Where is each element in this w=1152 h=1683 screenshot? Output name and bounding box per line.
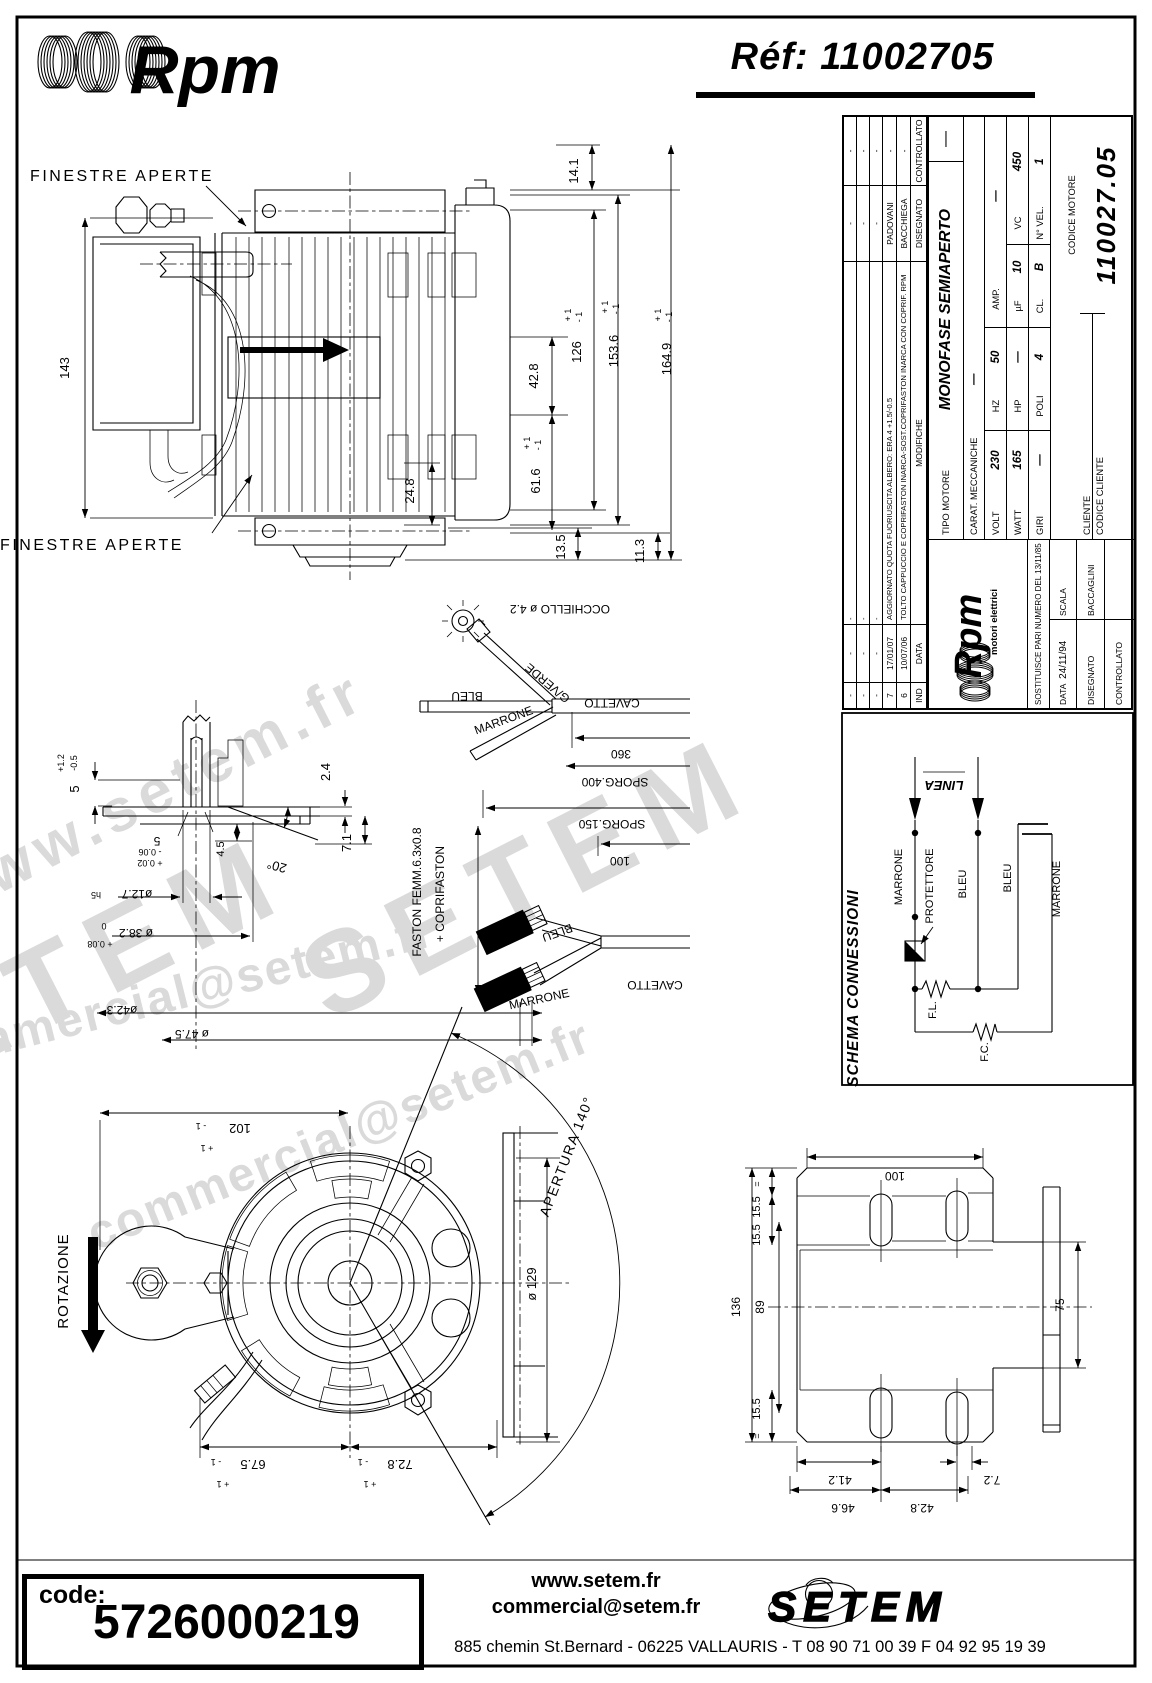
- dim-89: 89: [753, 1300, 767, 1314]
- cliente-label: CLIENTE: [1080, 314, 1093, 539]
- rev-cell: -: [857, 117, 870, 185]
- hz-label: HZ: [985, 386, 1006, 431]
- tipo-motore-note: —: [929, 117, 963, 162]
- dim-164-9-tol-minus: - 1: [664, 312, 674, 323]
- equal-mark-bottom: =: [752, 1433, 762, 1438]
- dim-12-7-suffix: h5: [91, 890, 101, 900]
- dim-100-cable: 100: [610, 854, 630, 868]
- rev-cell: -: [857, 624, 870, 682]
- footer-email: commercial@setem.fr: [300, 1596, 892, 1619]
- dim-13-5: 13.5: [553, 534, 568, 559]
- dim-12-7: ø12.7: [121, 887, 152, 901]
- dim-2-4: 2.4: [318, 763, 333, 781]
- rev-cell: -: [844, 682, 857, 708]
- cavetto-a-label: CAVETTO: [584, 696, 640, 710]
- nvel-label: N° VEL.: [1029, 206, 1050, 245]
- bleu-a-label: BLEU: [451, 689, 482, 703]
- schema-title: SCHEMA CONNESSIONI: [845, 889, 862, 1086]
- rev-cell: -: [844, 117, 857, 185]
- dim-11-3: 11.3: [632, 539, 647, 563]
- title-block: ----- ----- ----- 717/01/07AGGIORNATO QU…: [842, 115, 1133, 710]
- rev-cell: -: [870, 682, 883, 708]
- dim-67-5-tol-minus: - 1: [211, 1457, 222, 1467]
- equal-mark-top: =: [752, 1181, 762, 1186]
- cl-label: CL.: [1029, 289, 1050, 328]
- disegnato-label: DISEGNATO: [1077, 620, 1104, 708]
- uf-value: 10: [1012, 245, 1024, 289]
- dim-61-6-tol-minus: - 1: [533, 440, 543, 451]
- gverde-label: G/VERDE: [522, 660, 572, 705]
- hp-label: HP: [1007, 386, 1028, 431]
- codice-cliente-label: CODICE CLIENTE: [1093, 314, 1105, 539]
- dim-15-5-c: 15.5: [751, 1398, 763, 1419]
- dim-5b-tol-plus: + 0.02: [137, 858, 162, 868]
- rev-cell: -: [844, 261, 857, 624]
- faston-label-2: + COPRIFASTON: [433, 846, 447, 942]
- faston-label-1: FASTON FEMM.6.3x0.8: [410, 827, 424, 956]
- rev-header-ind: IND: [911, 682, 927, 708]
- rev-cell: -: [883, 117, 897, 185]
- amp-value: —: [990, 117, 1002, 275]
- dim-61-6-tol-plus: + 1: [522, 437, 532, 450]
- watt-label: WATT: [1013, 489, 1023, 539]
- dim-46-6: 46.6: [831, 1501, 855, 1515]
- data-row: DATA 24/11/94: [1050, 620, 1077, 708]
- dim-61-6: 61.6: [528, 468, 543, 493]
- cavetto-b-label: CAVETTO: [627, 978, 683, 992]
- rev-cell: -: [857, 261, 870, 624]
- dim-5a-tol-plus: +1.2: [56, 754, 66, 772]
- direction-arrow-icon: [240, 338, 349, 362]
- controllato-value: [1105, 540, 1134, 619]
- dim-38-2-tol-0: 0: [101, 921, 106, 931]
- schema-marrone-1: MARRONE: [893, 849, 905, 905]
- rev-header-disegnato: DISEGNATO: [911, 185, 927, 261]
- dim-14-1: 14.1: [566, 158, 581, 183]
- dim-41-2: 41.2: [828, 1473, 852, 1487]
- codice-motore-value: 110027.05: [1091, 146, 1122, 285]
- dim-5b: 5: [153, 834, 160, 848]
- dim-126-tol-plus: + 1: [563, 309, 573, 322]
- finestre-aperte-top-label: FINESTRE APERTE: [30, 168, 214, 185]
- dim-143: 143: [57, 357, 72, 379]
- title-block-body: Rpm motori elettrici SOSTITUISCE PARI NU…: [929, 117, 1134, 708]
- dim-72-8: 72.8: [387, 1457, 412, 1472]
- vc-label: VC: [1007, 206, 1028, 245]
- fl-label: F.L.: [927, 1001, 939, 1019]
- data-label: DATA: [1058, 684, 1068, 705]
- title-block-inner: ----- ----- ----- 717/01/07AGGIORNATO QU…: [842, 115, 1133, 710]
- dim-102-tol-minus: - 1: [196, 1121, 207, 1131]
- rpm-logo-text: Rpm: [129, 32, 280, 108]
- linea-arrows: [909, 798, 984, 820]
- rev-header-data: DATA: [911, 624, 927, 682]
- poli-label: POLI: [1029, 386, 1050, 431]
- dim-102: 102: [229, 1121, 251, 1136]
- fc-label: F.C.: [979, 1042, 991, 1062]
- dim-126: 126: [569, 341, 584, 363]
- winding-windows: [202, 253, 476, 479]
- dim-5a-tol-minus: -0.5: [69, 755, 79, 771]
- hz-value: 50: [990, 328, 1002, 386]
- dim-72-8-tol-plus: + 1: [364, 1479, 377, 1489]
- dim-164-9-tol-plus: + 1: [653, 309, 663, 322]
- dim-75: 75: [1053, 1298, 1067, 1312]
- dim-42-8: 42.8: [526, 363, 541, 388]
- watt-value: 165: [1012, 431, 1024, 489]
- nvel-value: 1: [1034, 117, 1046, 206]
- wiring-schema: SCHEMA CONNESSIONI LINEA MARRONE BLEU PR…: [842, 713, 1133, 1087]
- finestre-aperte-bottom-label: FINESTRE APERTE: [0, 537, 184, 554]
- schema-bleu-1: BLEU: [957, 870, 969, 899]
- hp-value: —: [1012, 328, 1024, 386]
- rpm-coils-small-icon: Rpm motori elettrici: [929, 542, 1025, 708]
- schema-bleu-2: BLEU: [1002, 864, 1014, 893]
- dim-153-6: 153.6: [606, 335, 621, 368]
- dim-24-8: 24.8: [402, 478, 417, 503]
- rev-cell: -: [857, 185, 870, 261]
- rpm-logo: Rpm: [38, 32, 281, 108]
- dim-67-5-tol-plus: + 1: [217, 1479, 230, 1489]
- drawing-sheet: www.setem.fr SETEM SETEM commercial@sete…: [0, 0, 1152, 1683]
- reference-underline: [696, 92, 1035, 98]
- dim-153-6-tol-minus: - 1: [611, 304, 621, 315]
- tipo-motore-label: TIPO MOTORE: [941, 457, 951, 539]
- dim-38-2-tol-8: + 0.08: [87, 939, 112, 949]
- sporg-400-label: SPORG.400: [581, 775, 648, 789]
- dim-72-8-tol-minus: - 1: [358, 1457, 369, 1467]
- data-value: 24/11/94: [1058, 641, 1069, 679]
- disegnato-value: BACCAGLINI: [1077, 540, 1104, 619]
- tipo-motore-value: MONOFASE SEMIAPERTO: [937, 162, 955, 457]
- footer-address: 885 chemin St.Bernard - 06225 VALLAURIS …: [380, 1638, 1120, 1657]
- dim-129: ø 129: [524, 1267, 539, 1300]
- rev-header-controllato: CONTROLLATO: [911, 117, 927, 185]
- title-block-left: Rpm motori elettrici SOSTITUISCE PARI NU…: [929, 539, 1134, 708]
- dim-15-5-b: 15.5: [751, 1224, 763, 1245]
- rev-cell: -: [897, 117, 911, 185]
- dim-42-3: ø42.3: [106, 1003, 137, 1017]
- rev-cell: 17/01/07: [883, 624, 897, 682]
- occhiello-label: OCCHIELLO ø 4.2: [510, 602, 610, 616]
- rev-cell: 10/07/06: [897, 624, 911, 682]
- title-block-right: TIPO MOTORE MONOFASE SEMIAPERTO — CARAT.…: [929, 117, 1134, 539]
- rev-cell: -: [870, 261, 883, 624]
- volt-value: 230: [990, 431, 1002, 489]
- linea-label: LINEA: [925, 778, 964, 793]
- dim-15-5-a: 15.5: [751, 1196, 763, 1217]
- mounting-bracket-view: 100 136 15.5 = 15.5 89 15.5 = 75 41.2 46…: [729, 1148, 1092, 1515]
- rev-cell: AGGIORNATO QUOTA FUORIUSCITA ALBERO: ERA…: [883, 261, 897, 624]
- rpm-small-sub: motori elettrici: [989, 589, 1000, 655]
- carat-label: CARAT. MECCANICHE: [969, 385, 979, 539]
- dim-164-9: 164.9: [659, 343, 674, 376]
- dim-47-5: ø 47.5: [175, 1027, 209, 1041]
- rotazione-label: ROTAZIONE: [55, 1233, 72, 1328]
- dim-136: 136: [729, 1297, 743, 1317]
- direction-arrow-box: [228, 337, 380, 398]
- rpm-logo-small: Rpm motori elettrici: [929, 540, 1028, 708]
- dim-153-6-tol-plus: + 1: [600, 301, 610, 314]
- poli-value: 4: [1034, 328, 1046, 386]
- dim-67-5: 67.5: [240, 1457, 265, 1472]
- dim-bracket-100: 100: [885, 1169, 905, 1183]
- rev-cell: -: [844, 624, 857, 682]
- codice-motore-label: CODICE MOTORE: [1067, 175, 1077, 254]
- dim-102-tol-plus: + 1: [201, 1143, 214, 1153]
- dim-7-1: 7.1: [339, 834, 354, 852]
- vc-value: 450: [1012, 117, 1024, 206]
- rev-cell: TOLTO CAPPUCCIO E COPRIFASTON INARCA-SOS…: [897, 261, 911, 624]
- rev-header-modifiche: MODIFICHE: [911, 261, 927, 624]
- dim-7-2: 7.2: [983, 1473, 1000, 1487]
- volt-label: VOLT: [991, 489, 1001, 539]
- rev-cell: -: [870, 185, 883, 261]
- rev-cell: -: [844, 185, 857, 261]
- apertura-label: APERTURA 140°: [536, 1094, 597, 1219]
- rev-cell: BACCHIEGA: [897, 185, 911, 261]
- rev-cell: -: [870, 624, 883, 682]
- dim-bracket-42-8: 42.8: [910, 1501, 934, 1515]
- protettore-label: PROTETTORE: [924, 849, 936, 924]
- dim-38-2: ø 38.2: [119, 926, 153, 940]
- controllato-label: CONTROLLATO: [1105, 620, 1134, 708]
- dim-4-5: 4.5: [215, 841, 227, 856]
- carat-value: —: [968, 374, 980, 386]
- cl-value: B: [1034, 245, 1046, 289]
- rev-cell: 6: [897, 682, 911, 708]
- revision-table: ----- ----- ----- 717/01/07AGGIORNATO QU…: [844, 117, 929, 708]
- sporg-150-label: SPORG.150: [578, 817, 645, 831]
- reference-number: Réf: 11002705: [690, 36, 1035, 79]
- rev-cell: PADOVANI: [883, 185, 897, 261]
- rev-cell: -: [857, 682, 870, 708]
- giri-value: —: [1034, 431, 1046, 489]
- rev-cell: 7: [883, 682, 897, 708]
- uf-label: µF: [1007, 289, 1028, 328]
- motor-side-view: FINESTRE APERTE FINESTRE APERTE 143 24.8…: [0, 145, 682, 580]
- dim-5b-tol-minus: - 0.06: [138, 847, 161, 857]
- dim-126-tol-minus: - 1: [574, 312, 584, 323]
- rev-cell: -: [870, 117, 883, 185]
- sostituisce-note: SOSTITUISCE PARI NUMERO DEL 13/11/85: [1028, 540, 1050, 708]
- watermark-email-2: commercial@setem.fr: [80, 1010, 599, 1261]
- dim-360: 360: [611, 747, 631, 761]
- footer-website: www.setem.fr: [300, 1570, 892, 1593]
- dim-5a: 5: [67, 785, 82, 792]
- giri-label: GIRI: [1035, 489, 1045, 539]
- schema-marrone-2: MARRONE: [1051, 861, 1063, 917]
- scala-label: SCALA: [1050, 540, 1077, 619]
- rpm-small-text: Rpm: [948, 594, 990, 678]
- amp-label: AMP.: [985, 275, 1006, 328]
